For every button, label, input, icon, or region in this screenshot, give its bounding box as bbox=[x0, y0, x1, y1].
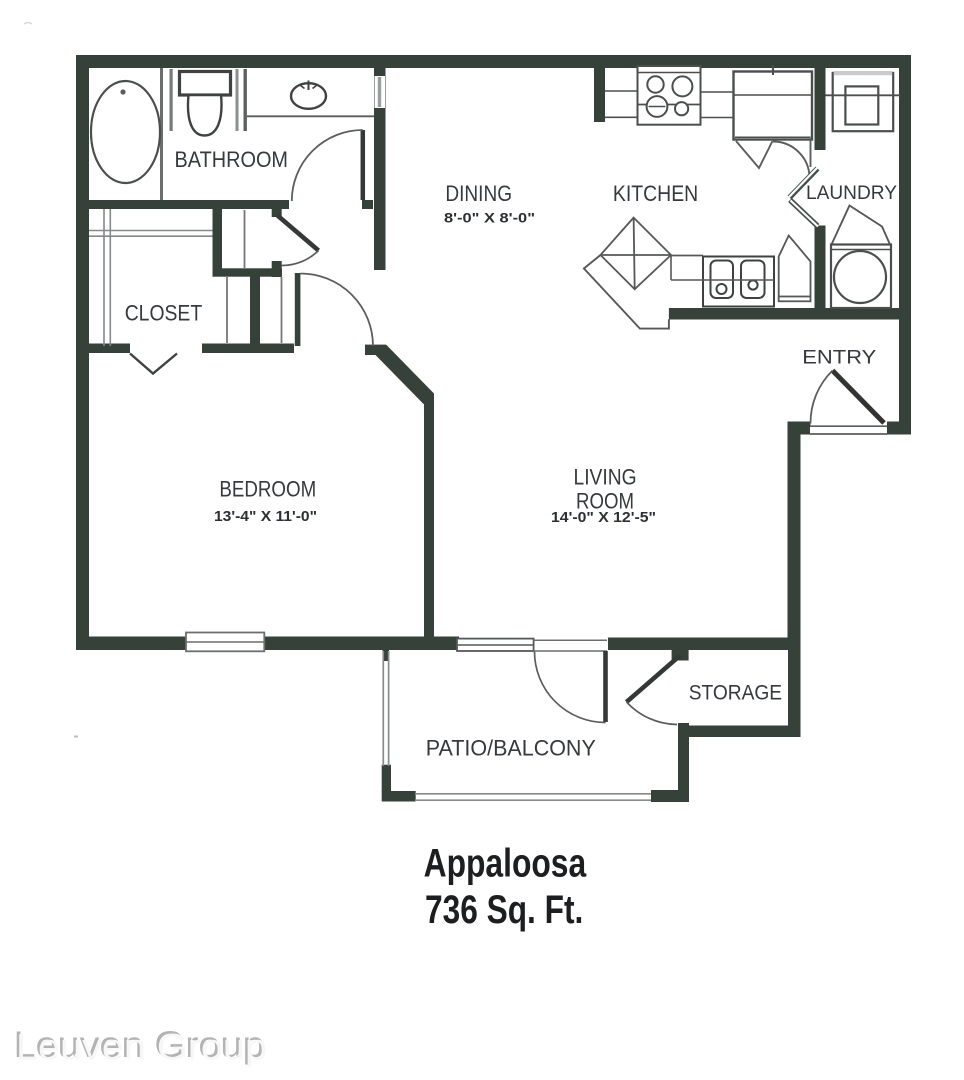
svg-text:13'-4" X 11'-0": 13'-4" X 11'-0" bbox=[214, 509, 317, 525]
svg-text:BATHROOM: BATHROOM bbox=[175, 147, 289, 172]
svg-text:Appaloosa: Appaloosa bbox=[424, 842, 587, 886]
svg-text:736 Sq. Ft.: 736 Sq. Ft. bbox=[425, 888, 583, 932]
svg-text:Leuven Group: Leuven Group bbox=[16, 1027, 267, 1068]
svg-text:PATIO/BALCONY: PATIO/BALCONY bbox=[426, 736, 596, 761]
svg-text:BEDROOM: BEDROOM bbox=[219, 476, 316, 501]
svg-text:LAUNDRY: LAUNDRY bbox=[806, 183, 897, 204]
svg-text:KITCHEN: KITCHEN bbox=[613, 181, 698, 206]
svg-text:CLOSET: CLOSET bbox=[125, 301, 203, 326]
svg-text:STORAGE: STORAGE bbox=[689, 681, 782, 704]
svg-text:LIVING: LIVING bbox=[574, 465, 637, 490]
svg-text:8'-0" X 8'-0": 8'-0" X 8'-0" bbox=[444, 211, 535, 226]
svg-text:ENTRY: ENTRY bbox=[802, 347, 876, 369]
svg-text:DINING: DINING bbox=[445, 181, 512, 206]
svg-text:14'-0" X 12'-5": 14'-0" X 12'-5" bbox=[551, 510, 656, 526]
